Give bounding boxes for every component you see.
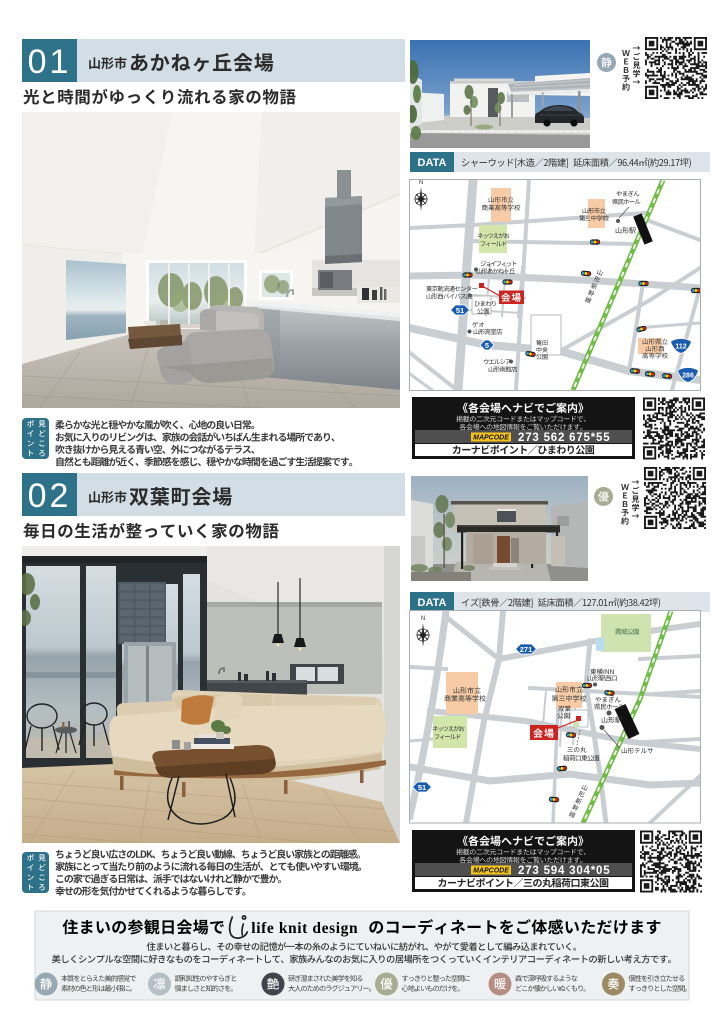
svg-text:51: 51 (418, 783, 426, 792)
svg-text:286: 286 (682, 372, 694, 379)
svg-text:MAPCODE: MAPCODE (473, 434, 509, 441)
svg-text:02: 02 (28, 477, 72, 515)
svg-text:MAPCODE: MAPCODE (473, 867, 509, 874)
svg-text:DATA: DATA (418, 157, 447, 169)
svg-text:01: 01 (28, 43, 72, 81)
svg-text:51: 51 (456, 306, 464, 315)
svg-text:112: 112 (675, 343, 686, 350)
svg-text:273 562 675*55: 273 562 675*55 (518, 432, 610, 444)
svg-text:life knit design: life knit design (251, 920, 358, 937)
svg-text:DATA: DATA (418, 597, 447, 609)
svg-text:271: 271 (520, 645, 533, 654)
svg-text:273 594 304*05: 273 594 304*05 (518, 865, 610, 877)
svg-text:5: 5 (485, 341, 489, 350)
svg-text:N: N (421, 616, 425, 622)
svg-text:N: N (419, 180, 423, 186)
